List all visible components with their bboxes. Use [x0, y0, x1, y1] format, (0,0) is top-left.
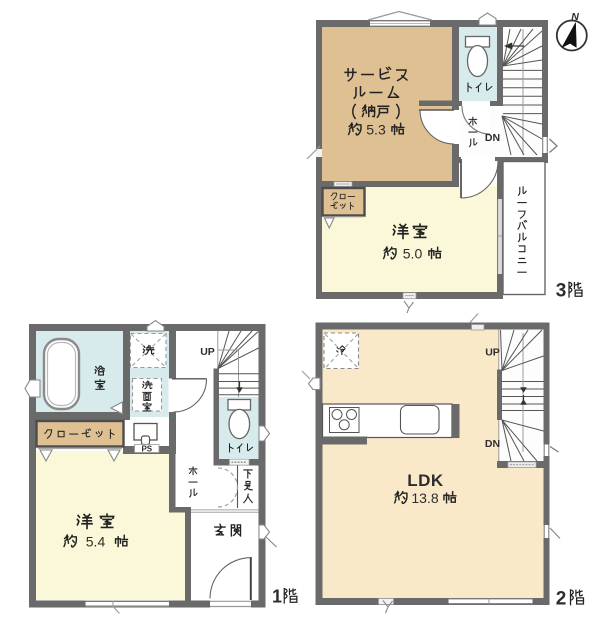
- svg-text:13.8: 13.8: [411, 490, 438, 506]
- svg-text:DN: DN: [485, 132, 500, 144]
- svg-text:PS: PS: [141, 444, 152, 453]
- svg-text:5.3: 5.3: [366, 122, 386, 138]
- svg-text:N: N: [571, 11, 579, 23]
- svg-text:2: 2: [556, 589, 567, 610]
- svg-text:LDK: LDK: [407, 471, 444, 490]
- svg-text:5.4: 5.4: [86, 534, 106, 550]
- svg-text:DN: DN: [485, 438, 500, 450]
- svg-text:1: 1: [272, 587, 282, 607]
- svg-text:3: 3: [556, 281, 567, 302]
- svg-text:5.0: 5.0: [403, 246, 423, 262]
- svg-text:UP: UP: [485, 347, 500, 359]
- svg-text:UP: UP: [200, 346, 215, 358]
